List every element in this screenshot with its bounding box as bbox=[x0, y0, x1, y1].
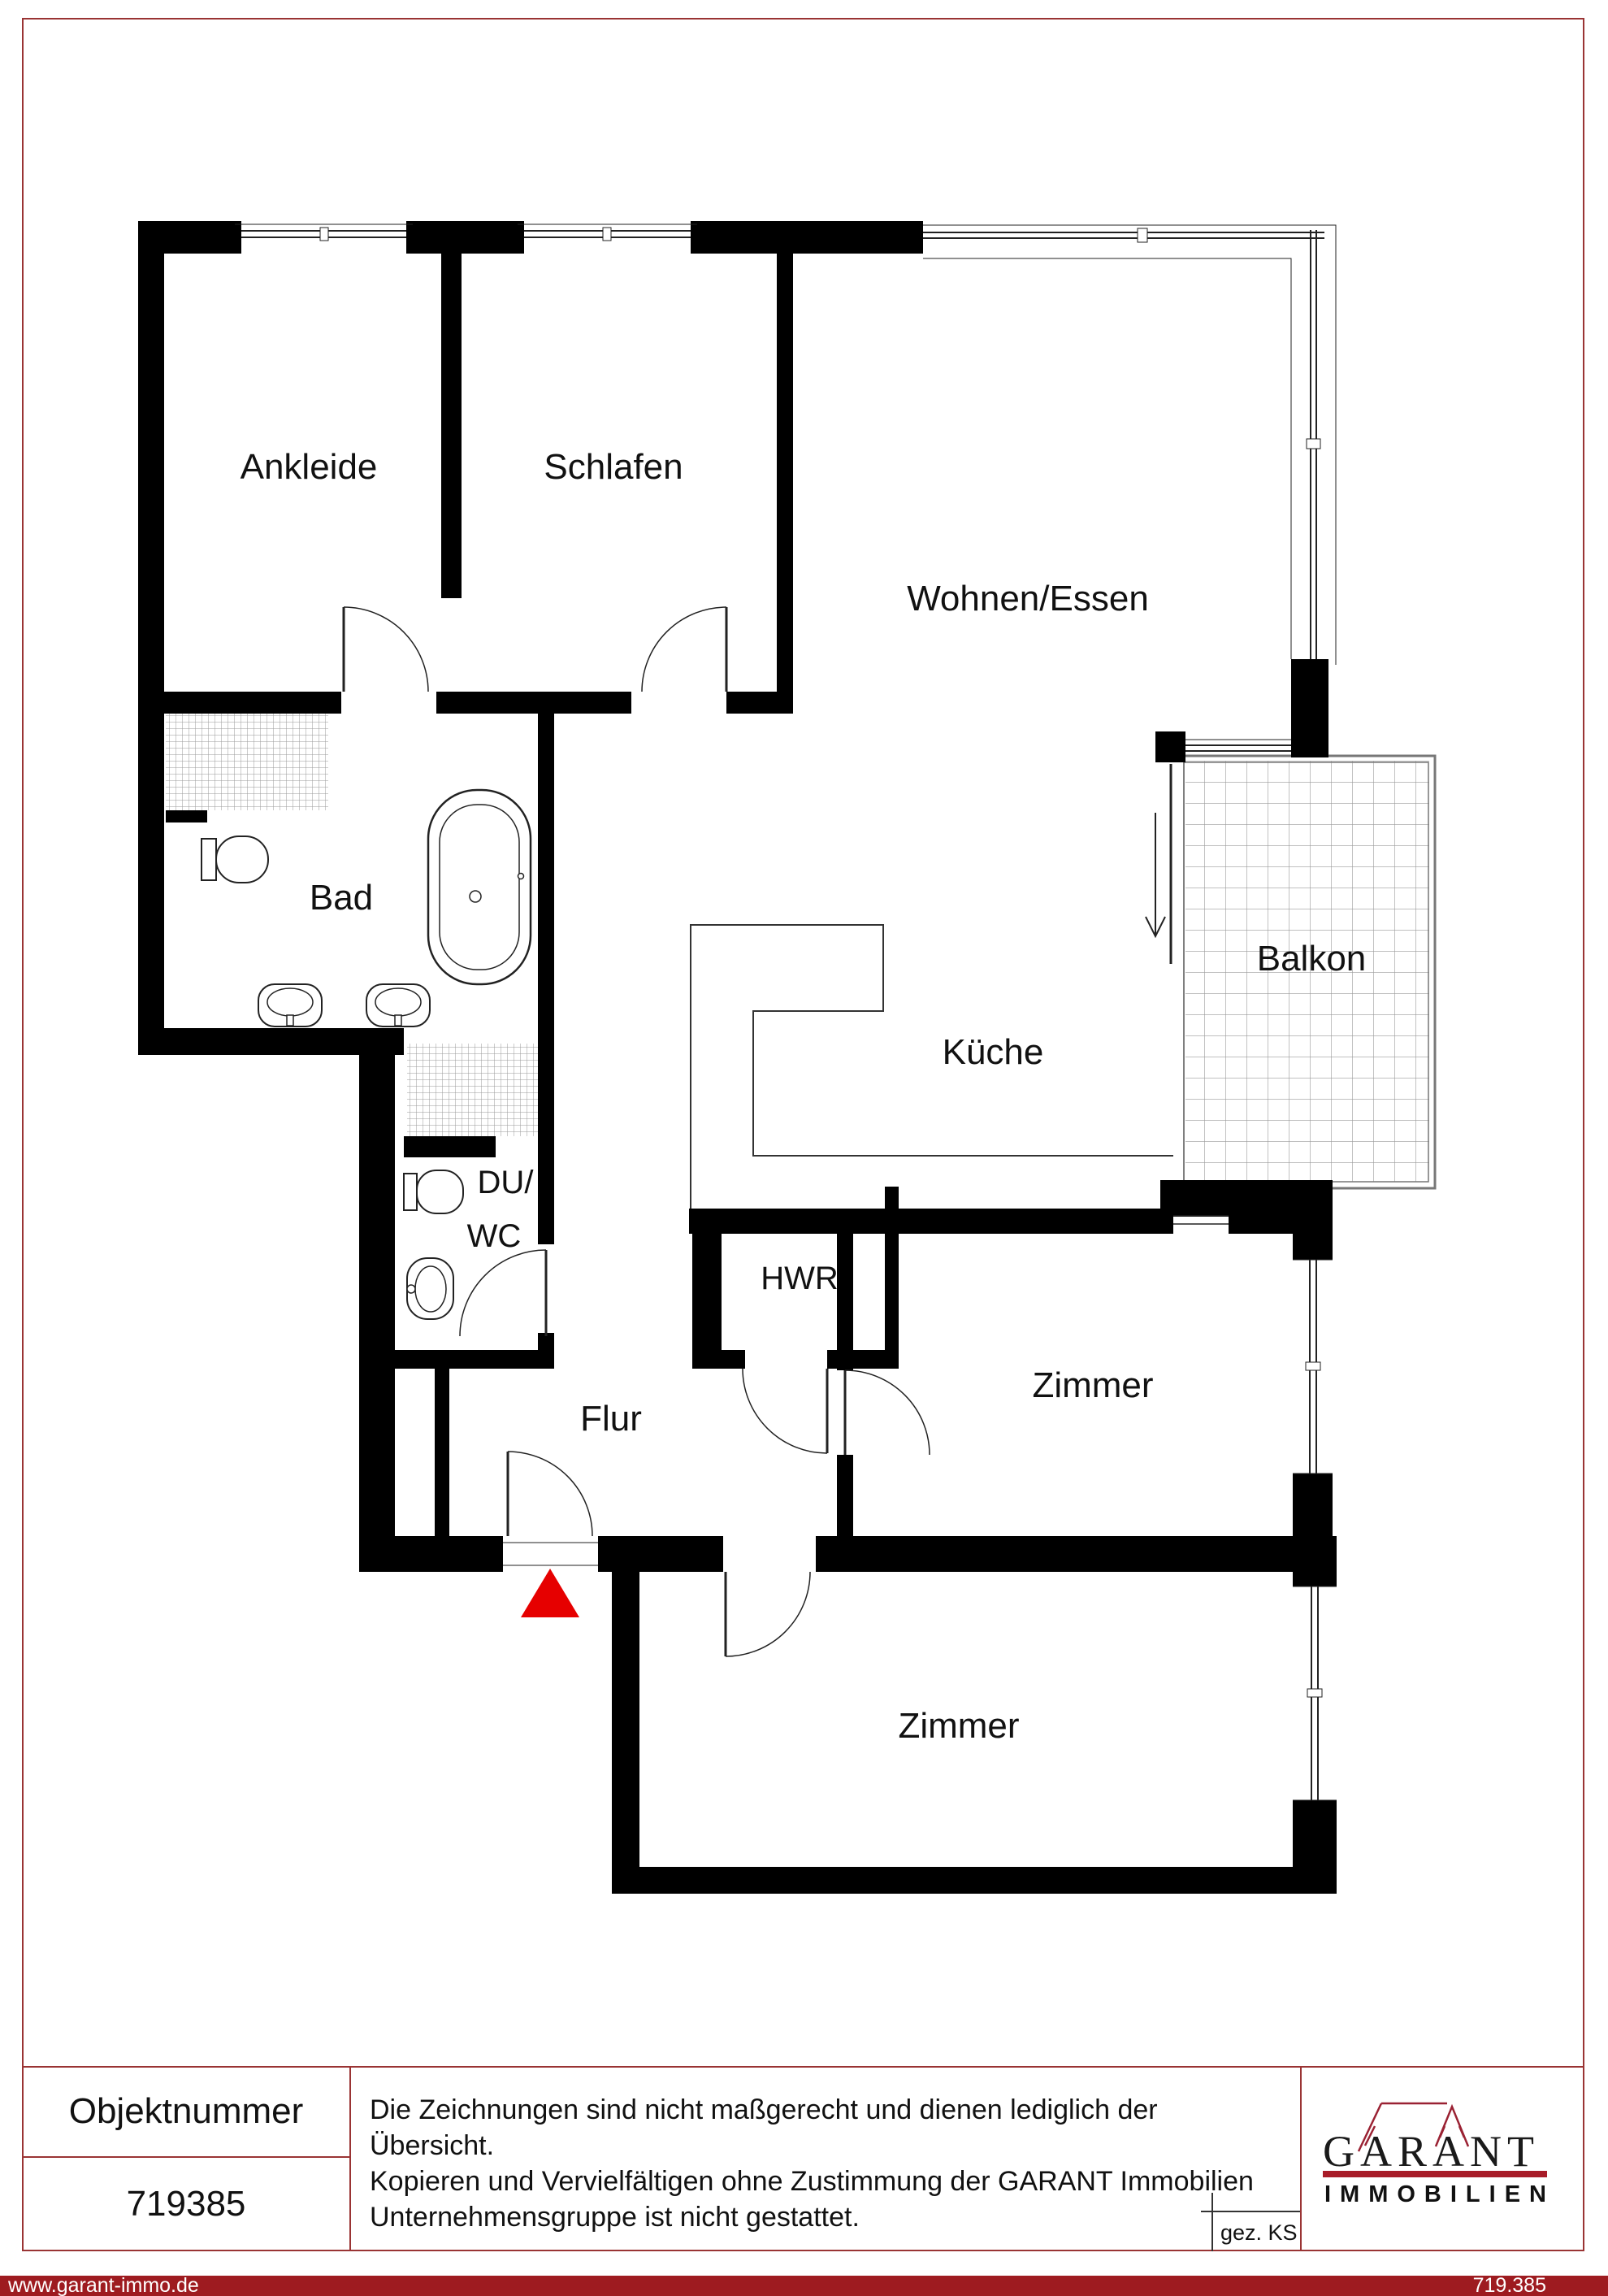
entrance-triangle-icon bbox=[521, 1569, 579, 1617]
room-label-wohnen-essen: Wohnen/Essen bbox=[907, 579, 1149, 618]
signature-box-line bbox=[1201, 2211, 1300, 2212]
disclaimer-line-2: Kopieren und Vervielfältigen ohne Zustim… bbox=[370, 2164, 1288, 2199]
sink-bad-right-icon bbox=[366, 984, 430, 1026]
signature-label: gez. KS bbox=[1220, 2220, 1298, 2246]
object-number-value: 719385 bbox=[23, 2156, 349, 2251]
garant-logo-underline bbox=[1323, 2171, 1547, 2177]
door-schlafen bbox=[642, 607, 726, 692]
object-number-label: Objektnummer bbox=[23, 2066, 349, 2156]
toilet-duwc-icon bbox=[404, 1170, 463, 1213]
window-zimmer-mitte bbox=[1293, 1260, 1333, 1474]
room-label-ankleide: Ankleide bbox=[241, 447, 378, 487]
door-duwc bbox=[460, 1250, 546, 1336]
sink-bad-left-icon bbox=[258, 984, 322, 1026]
toilet-bad-icon bbox=[202, 836, 268, 883]
room-label-bad: Bad bbox=[310, 878, 373, 918]
bad-shower-tiles bbox=[166, 701, 328, 810]
bathtub-icon bbox=[428, 790, 531, 984]
balcony-arrow-icon bbox=[1146, 813, 1165, 936]
window-zimmer-unten bbox=[1293, 1586, 1337, 1800]
garant-logo-wordmark: GARANT bbox=[1323, 2126, 1550, 2177]
door-ankleide bbox=[344, 607, 428, 692]
logo-cell-divider bbox=[1300, 2066, 1302, 2251]
floorplan-sheet: Ankleide Schlafen Wohnen/Essen Bad Küche… bbox=[0, 0, 1608, 2296]
window-zimmer-top bbox=[1173, 1216, 1229, 1224]
room-label-du: DU/ bbox=[478, 1165, 535, 1200]
room-label-hwr: HWR bbox=[761, 1261, 839, 1296]
disclaimer-text: Die Zeichnungen sind nicht maßgerecht un… bbox=[370, 2092, 1288, 2235]
door-zimmer-mitte bbox=[845, 1370, 930, 1455]
glass-wall-balcony bbox=[1185, 740, 1291, 751]
door-zimmer-unten bbox=[726, 1572, 810, 1656]
sink-duwc-icon bbox=[407, 1258, 453, 1319]
disclaimer-line-3: Unternehmensgruppe ist nicht gestattet. bbox=[370, 2199, 1288, 2235]
room-label-balkon: Balkon bbox=[1257, 939, 1367, 979]
door-hwr bbox=[743, 1369, 827, 1453]
bottom-bar-url: www.garant-immo.de bbox=[8, 2276, 199, 2296]
footer-cell-divider-vertical bbox=[349, 2066, 351, 2251]
door-entrance bbox=[503, 1452, 598, 1565]
floorplan-drawing: Ankleide Schlafen Wohnen/Essen Bad Küche… bbox=[0, 0, 1608, 2007]
duwc-shower-tiles bbox=[407, 1044, 538, 1136]
garant-logo-subtitle: IMMOBILIEN bbox=[1324, 2181, 1552, 2208]
room-label-wc: WC bbox=[467, 1218, 522, 1254]
signature-box-tick bbox=[1211, 2193, 1213, 2251]
bottom-bar-number: 719.385 bbox=[1473, 2276, 1546, 2296]
room-label-zimmer-mitte: Zimmer bbox=[1032, 1365, 1153, 1405]
room-label-schlafen: Schlafen bbox=[544, 447, 683, 487]
disclaimer-line-1: Die Zeichnungen sind nicht maßgerecht un… bbox=[370, 2092, 1288, 2164]
room-label-zimmer-unten: Zimmer bbox=[898, 1706, 1019, 1746]
room-label-kueche: Küche bbox=[943, 1032, 1044, 1072]
room-label-flur: Flur bbox=[580, 1399, 642, 1439]
kitchen-counter bbox=[691, 925, 1173, 1209]
bottom-bar: www.garant-immo.de 719.385 bbox=[0, 2276, 1608, 2296]
